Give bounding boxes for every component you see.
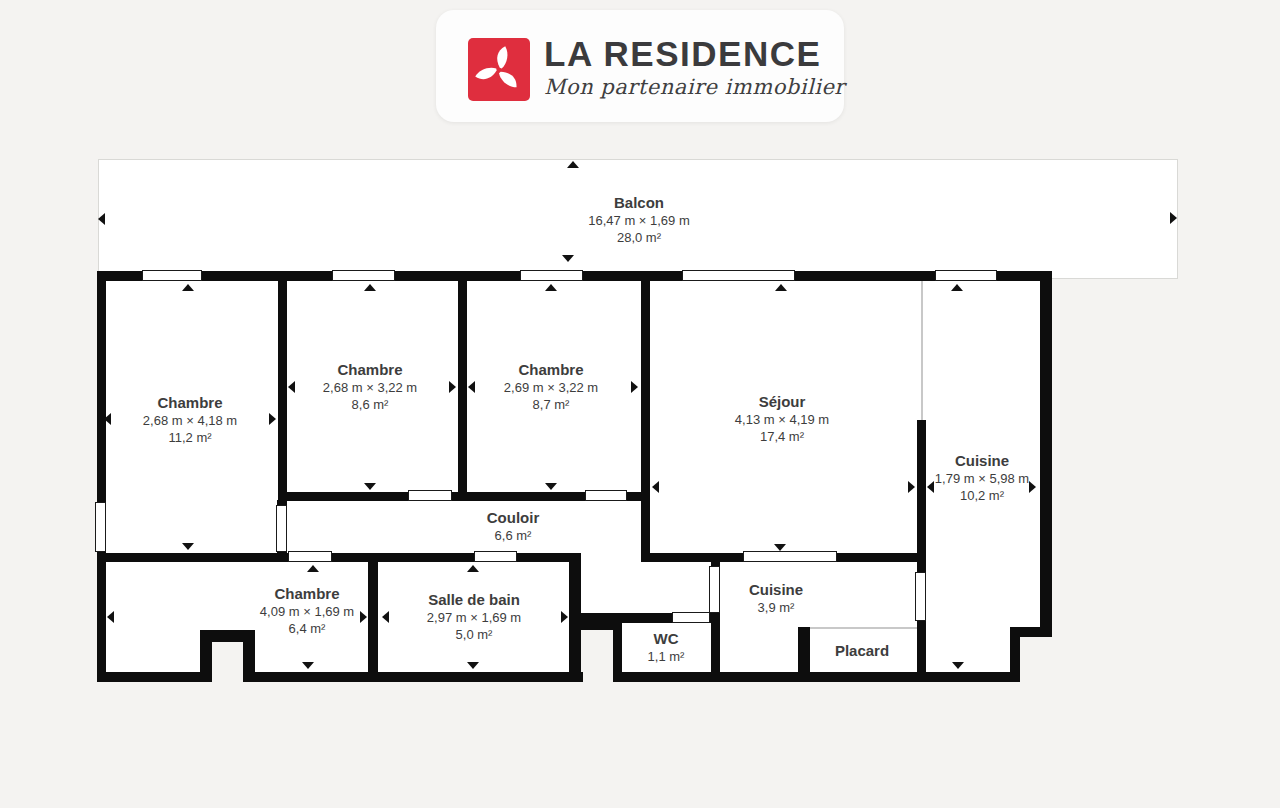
room-dimensions: 2,69 m × 3,22 m <box>504 379 598 396</box>
door-window-opening <box>935 270 997 281</box>
wall <box>641 271 650 562</box>
room-name: Balcon <box>588 194 690 212</box>
dimension-arrow-down-icon <box>952 662 964 669</box>
room-label-sejour: Séjour4,13 m × 4,19 m17,4 m² <box>735 393 829 445</box>
dimension-arrow-down-icon <box>774 544 786 551</box>
apartment-floor <box>97 271 1020 682</box>
wall <box>368 562 378 682</box>
dimension-arrow-right-icon <box>360 611 367 623</box>
wall <box>458 271 467 501</box>
dimension-arrow-left-icon <box>927 481 934 493</box>
dimension-arrow-left-icon <box>104 413 111 425</box>
room-dimensions: 2,68 m × 3,22 m <box>323 379 417 396</box>
room-name: Chambre <box>504 361 598 379</box>
room-name: Placard <box>835 642 889 660</box>
room-area: 10,2 m² <box>935 487 1029 504</box>
dimension-arrow-right-icon <box>561 611 568 623</box>
room-name: Salle de bain <box>427 591 521 609</box>
open-partition-line <box>810 627 917 629</box>
door-window-opening <box>915 572 926 621</box>
room-label-chambre-1: Chambre2,68 m × 4,18 m11,2 m² <box>143 394 237 446</box>
room-area: 11,2 m² <box>143 429 237 446</box>
dimension-arrow-down-icon <box>302 662 314 669</box>
door-window-opening <box>682 270 795 281</box>
door-window-opening <box>288 551 332 562</box>
room-area: 1,1 m² <box>648 648 685 665</box>
room-area: 17,4 m² <box>735 428 829 445</box>
dimension-arrow-down-icon <box>182 543 194 550</box>
room-area: 8,7 m² <box>504 396 598 413</box>
dimension-arrow-right-icon <box>631 381 638 393</box>
dimension-arrow-down-icon <box>562 255 574 262</box>
dimension-arrow-left-icon <box>382 611 389 623</box>
door-window-opening <box>709 566 720 613</box>
dimension-arrow-up-icon <box>182 284 194 291</box>
dimension-arrow-left-icon <box>468 381 475 393</box>
room-area: 28,0 m² <box>588 229 690 246</box>
room-dimensions: 4,13 m × 4,19 m <box>735 411 829 428</box>
dimension-arrow-down-icon <box>467 662 479 669</box>
room-area: 3,9 m² <box>749 599 803 616</box>
room-area: 5,0 m² <box>427 626 521 643</box>
dimension-arrow-up-icon <box>307 565 319 572</box>
room-label-wc: WC1,1 m² <box>648 630 685 665</box>
dimension-arrow-up-icon <box>545 284 557 291</box>
room-label-chambre-4: Chambre4,09 m × 1,69 m6,4 m² <box>260 585 354 637</box>
room-label-chambre-3: Chambre2,69 m × 3,22 m8,7 m² <box>504 361 598 413</box>
door-window-opening <box>672 612 710 623</box>
dimension-arrow-up-icon <box>951 284 963 291</box>
open-partition-line <box>921 281 923 420</box>
room-name: Séjour <box>735 393 829 411</box>
dimension-arrow-right-icon <box>449 381 456 393</box>
room-name: WC <box>648 630 685 648</box>
dimension-arrow-down-icon <box>545 483 557 490</box>
dimension-arrow-up-icon <box>775 284 787 291</box>
room-area: 8,6 m² <box>323 396 417 413</box>
room-name: Chambre <box>143 394 237 412</box>
wall <box>243 672 583 682</box>
dimension-arrow-up-icon <box>467 565 479 572</box>
room-label-salle-de-bain: Salle de bain2,97 m × 1,69 m5,0 m² <box>427 591 521 643</box>
room-area: 6,4 m² <box>260 620 354 637</box>
room-area: 6,6 m² <box>487 527 540 544</box>
room-name: Couloir <box>487 509 540 527</box>
room-name: Chambre <box>323 361 417 379</box>
wall <box>1040 271 1052 637</box>
room-label-couloir: Couloir6,6 m² <box>487 509 540 544</box>
dimension-arrow-left-icon <box>107 611 114 623</box>
dimension-arrow-right-icon <box>1170 212 1177 224</box>
room-label-cuisine: Cuisine1,79 m × 5,98 m10,2 m² <box>935 452 1029 504</box>
exterior-recess <box>212 642 243 682</box>
floor-plan: Balcon16,47 m × 1,69 m28,0 m²Chambre2,68… <box>0 0 1280 808</box>
wall <box>97 271 106 682</box>
room-name: Chambre <box>260 585 354 603</box>
exterior-recess <box>581 630 613 682</box>
door-window-opening <box>585 490 627 501</box>
room-label-cuisine-2: Cuisine3,9 m² <box>749 581 803 616</box>
dimension-arrow-up-icon <box>567 161 579 168</box>
room-dimensions: 16,47 m × 1,69 m <box>588 212 690 229</box>
dimension-arrow-down-icon <box>364 483 376 490</box>
wall <box>97 672 212 682</box>
room-label-chambre-2: Chambre2,68 m × 3,22 m8,6 m² <box>323 361 417 413</box>
wall <box>278 271 287 501</box>
wall <box>917 420 926 682</box>
wall <box>243 630 255 672</box>
door-window-opening <box>743 551 837 562</box>
dimension-arrow-left-icon <box>98 213 105 225</box>
dimension-arrow-left-icon <box>652 481 659 493</box>
door-window-opening <box>408 490 452 501</box>
room-dimensions: 2,68 m × 4,18 m <box>143 412 237 429</box>
dimension-arrow-right-icon <box>269 413 276 425</box>
dimension-arrow-up-icon <box>364 284 376 291</box>
door-window-opening <box>474 551 517 562</box>
room-label-balcon: Balcon16,47 m × 1,69 m28,0 m² <box>588 194 690 246</box>
wall <box>613 672 1020 682</box>
room-dimensions: 1,79 m × 5,98 m <box>935 470 1029 487</box>
room-label-placard: Placard <box>835 642 889 660</box>
dimension-arrow-left-icon <box>288 381 295 393</box>
dimension-arrow-right-icon <box>1029 481 1036 493</box>
room-dimensions: 2,97 m × 1,69 m <box>427 609 521 626</box>
door-window-opening <box>332 270 395 281</box>
door-window-opening <box>142 270 202 281</box>
dimension-arrow-right-icon <box>908 481 915 493</box>
door-window-opening <box>520 270 583 281</box>
floor-plan-page: LA RESIDENCE Mon partenaire immobilier B… <box>0 0 1280 808</box>
room-name: Cuisine <box>935 452 1029 470</box>
room-name: Cuisine <box>749 581 803 599</box>
room-dimensions: 4,09 m × 1,69 m <box>260 603 354 620</box>
door-window-opening <box>276 505 287 552</box>
door-window-opening <box>95 502 106 552</box>
